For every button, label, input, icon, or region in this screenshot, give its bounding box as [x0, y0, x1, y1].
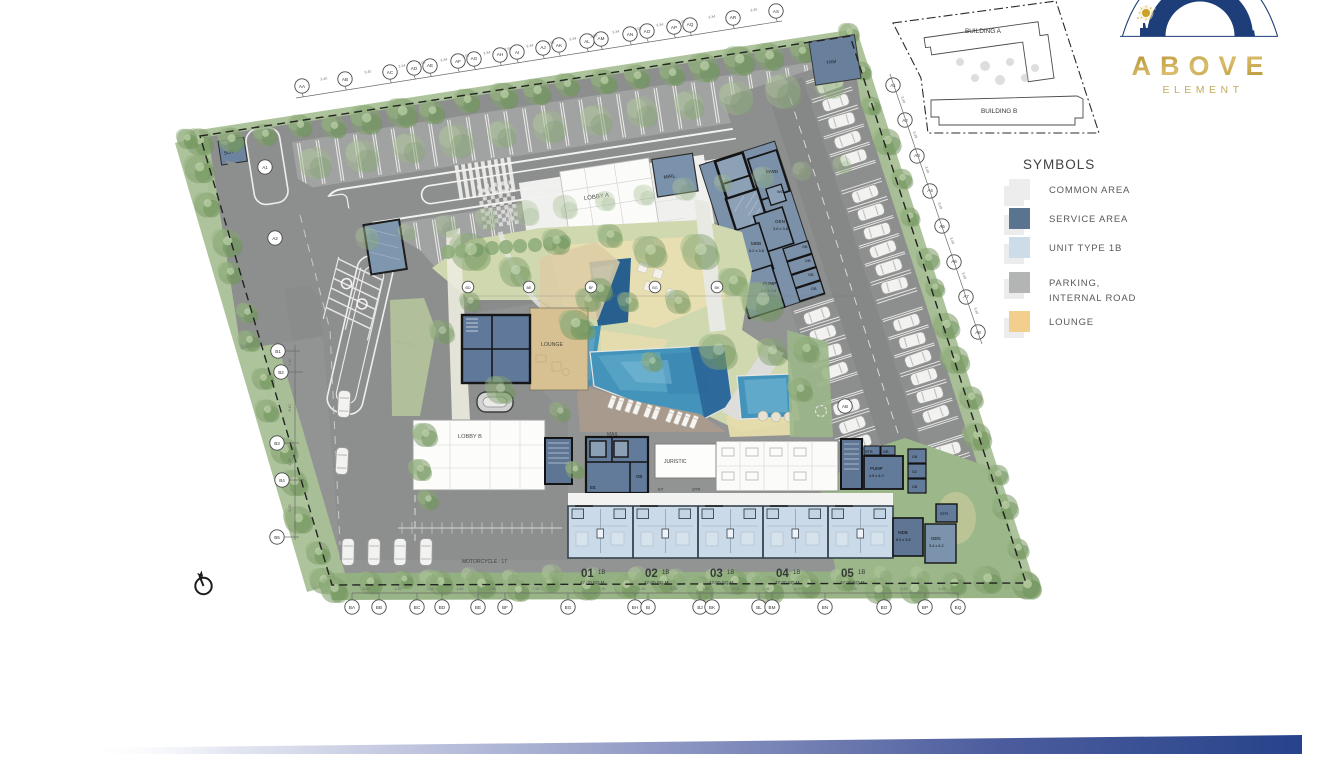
- svg-text:BN: BN: [822, 605, 828, 610]
- svg-text:7.95: 7.95: [533, 587, 540, 591]
- svg-text:COMMON AREA: COMMON AREA: [1049, 185, 1130, 196]
- svg-text:AL: AL: [584, 39, 590, 44]
- svg-text:BL: BL: [756, 605, 762, 610]
- svg-text:STR: STR: [865, 450, 873, 454]
- svg-text:47.00 SQ.M: 47.00 SQ.M: [709, 580, 734, 585]
- svg-text:BO: BO: [881, 605, 888, 610]
- svg-text:UNIT TYPE 1B: UNIT TYPE 1B: [1049, 243, 1122, 254]
- svg-text:B2: B2: [278, 370, 284, 375]
- svg-text:1B: 1B: [858, 570, 865, 576]
- svg-text:4.85: 4.85: [395, 587, 402, 591]
- svg-text:AA: AA: [299, 84, 306, 89]
- svg-text:BJ: BJ: [697, 605, 702, 610]
- svg-text:LOUNGE: LOUNGE: [541, 342, 563, 348]
- svg-text:BE: BE: [475, 605, 481, 610]
- svg-text:4.25: 4.25: [939, 587, 946, 591]
- svg-text:1.55: 1.55: [703, 587, 710, 591]
- svg-text:STR: STR: [692, 487, 700, 492]
- svg-text:GB: GB: [805, 259, 811, 263]
- svg-text:AQ: AQ: [687, 22, 694, 27]
- svg-text:4.20: 4.20: [288, 459, 292, 466]
- svg-text:02: 02: [645, 568, 658, 580]
- svg-text:7.90: 7.90: [599, 587, 606, 591]
- svg-text:A1: A1: [262, 165, 268, 170]
- svg-text:JURISTIC: JURISTIC: [664, 459, 687, 465]
- svg-text:WC: WC: [777, 189, 784, 194]
- svg-text:BE: BE: [526, 286, 532, 290]
- svg-text:MDB: MDB: [898, 530, 908, 535]
- svg-text:BB: BB: [376, 605, 382, 610]
- svg-text:47.00 SQ.M: 47.00 SQ.M: [775, 580, 800, 585]
- svg-text:03: 03: [710, 568, 723, 580]
- svg-text:BC: BC: [414, 605, 421, 610]
- svg-text:9.10: 9.10: [288, 405, 292, 412]
- svg-text:AO: AO: [644, 29, 651, 34]
- svg-text:PUMP: PUMP: [870, 466, 883, 471]
- svg-text:04: 04: [776, 568, 789, 580]
- svg-text:6.0 x 3.5: 6.0 x 3.5: [896, 538, 911, 542]
- svg-text:01: 01: [581, 568, 594, 580]
- svg-text:BD: BD: [465, 286, 471, 290]
- svg-text:AP: AP: [671, 25, 677, 30]
- svg-text:3.6 x 3.8: 3.6 x 3.8: [773, 226, 788, 231]
- svg-text:3.25: 3.25: [427, 587, 434, 591]
- svg-text:ABOVE: ABOVE: [1131, 51, 1272, 81]
- svg-text:GB: GB: [808, 273, 814, 277]
- svg-text:7.90: 7.90: [851, 587, 858, 591]
- svg-text:47.00 SQ.M: 47.00 SQ.M: [580, 580, 605, 585]
- svg-text:BM: BM: [769, 605, 776, 610]
- svg-text:BA: BA: [349, 605, 356, 610]
- svg-text:MAIL: MAIL: [607, 432, 619, 438]
- svg-text:BK: BK: [714, 286, 720, 290]
- svg-text:1B: 1B: [727, 570, 734, 576]
- svg-text:6.70: 6.70: [795, 587, 802, 591]
- svg-text:A2: A2: [272, 236, 278, 241]
- svg-text:47.00 SQ.M: 47.00 SQ.M: [840, 580, 865, 585]
- svg-text:GB: GB: [802, 245, 808, 249]
- svg-text:3.4 x 4.2: 3.4 x 4.2: [929, 544, 944, 548]
- svg-text:3.25: 3.25: [363, 587, 370, 591]
- svg-text:BH: BH: [632, 605, 638, 610]
- svg-text:BUILDING B: BUILDING B: [981, 108, 1017, 115]
- svg-text:AK: AK: [556, 43, 563, 48]
- svg-text:LOBBY B: LOBBY B: [458, 434, 482, 440]
- svg-text:GB: GB: [811, 287, 817, 291]
- svg-text:G2: G2: [912, 470, 917, 474]
- svg-text:BG: BG: [565, 605, 572, 610]
- svg-text:1B: 1B: [662, 570, 669, 576]
- svg-text:ELEMENT: ELEMENT: [1162, 84, 1243, 96]
- svg-text:EE: EE: [590, 485, 596, 490]
- svg-text:BD: BD: [439, 605, 446, 610]
- svg-text:AC: AC: [387, 70, 394, 75]
- svg-text:KT: KT: [658, 487, 664, 492]
- svg-text:5.25: 5.25: [901, 587, 908, 591]
- svg-text:AF: AF: [455, 59, 461, 64]
- svg-text:SYMBOLS: SYMBOLS: [1023, 157, 1095, 172]
- svg-text:AM: AM: [598, 36, 605, 41]
- svg-text:1B: 1B: [598, 570, 605, 576]
- svg-text:GEN: GEN: [775, 219, 785, 224]
- svg-text:AE: AE: [427, 63, 433, 68]
- svg-text:BF: BF: [589, 286, 595, 290]
- svg-text:INTERNAL ROAD: INTERNAL ROAD: [1049, 293, 1136, 304]
- svg-text:G8: G8: [912, 485, 917, 489]
- svg-text:4.9 x 4.0: 4.9 x 4.0: [869, 474, 884, 478]
- svg-text:SERVICE AREA: SERVICE AREA: [1049, 214, 1128, 225]
- svg-text:BP: BP: [922, 605, 928, 610]
- svg-text:BK: BK: [709, 605, 716, 610]
- svg-text:2.10: 2.10: [288, 359, 292, 366]
- svg-text:AB: AB: [842, 404, 848, 409]
- svg-text:LOUNGE: LOUNGE: [1049, 317, 1094, 328]
- svg-text:1B: 1B: [793, 570, 800, 576]
- svg-text:AD: AD: [411, 66, 418, 71]
- svg-text:AB: AB: [342, 77, 348, 82]
- svg-text:BUILDING A: BUILDING A: [965, 28, 1002, 35]
- svg-text:BQ: BQ: [955, 605, 962, 610]
- svg-text:B3: B3: [274, 441, 280, 446]
- svg-text:AR: AR: [730, 15, 737, 20]
- svg-text:G8: G8: [912, 455, 917, 459]
- svg-text:PARKING,: PARKING,: [1049, 278, 1100, 289]
- svg-text:AS: AS: [773, 9, 779, 14]
- svg-text:5.95: 5.95: [733, 587, 740, 591]
- svg-text:B1: B1: [275, 349, 281, 354]
- svg-text:AH: AH: [497, 52, 503, 57]
- svg-text:BI: BI: [646, 605, 650, 610]
- svg-text:GB: GB: [636, 474, 642, 479]
- svg-text:AI: AI: [515, 50, 519, 55]
- svg-text:05: 05: [841, 568, 854, 580]
- svg-text:STR: STR: [940, 511, 948, 516]
- svg-text:47.00 SQ.M: 47.00 SQ.M: [644, 580, 669, 585]
- svg-text:GEN: GEN: [931, 536, 941, 541]
- svg-text:1.55: 1.55: [763, 587, 770, 591]
- svg-text:BG: BG: [652, 286, 658, 290]
- svg-text:B4: B4: [279, 478, 285, 483]
- svg-text:5.2 x 3.8: 5.2 x 3.8: [749, 248, 764, 253]
- svg-text:BF: BF: [502, 605, 508, 610]
- svg-text:1.50: 1.50: [639, 587, 646, 591]
- svg-text:6.80: 6.80: [288, 505, 292, 512]
- svg-text:B5: B5: [274, 535, 280, 540]
- svg-text:GB: GB: [883, 450, 889, 454]
- svg-text:4.65: 4.65: [457, 587, 464, 591]
- svg-text:1.55: 1.55: [489, 587, 496, 591]
- svg-text:AJ: AJ: [540, 45, 545, 50]
- svg-text:AG: AG: [471, 56, 478, 61]
- svg-text:6.35: 6.35: [671, 587, 678, 591]
- svg-text:AN: AN: [627, 32, 633, 37]
- svg-text:MDB: MDB: [751, 241, 761, 246]
- svg-text:MOTORCYCLE : 17: MOTORCYCLE : 17: [462, 559, 507, 565]
